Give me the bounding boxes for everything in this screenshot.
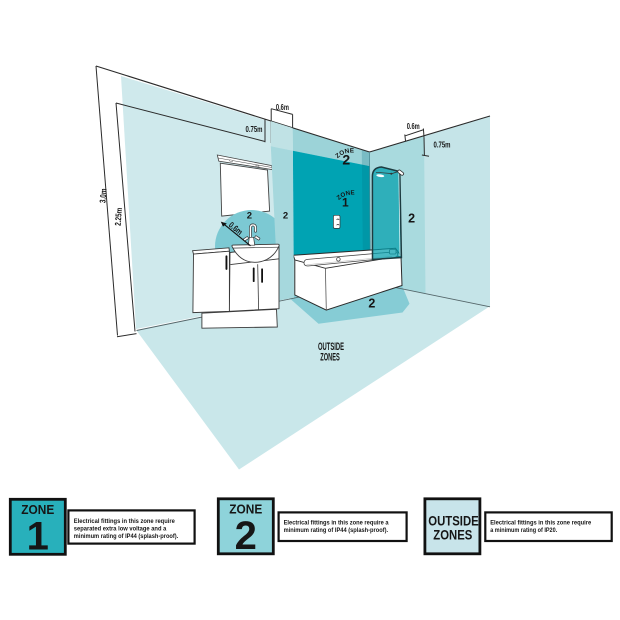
svg-text:2: 2	[368, 296, 375, 310]
svg-text:2.25m: 2.25m	[113, 207, 124, 226]
svg-text:ZONES: ZONES	[320, 352, 340, 364]
svg-text:2: 2	[283, 211, 288, 222]
svg-text:Electrical fittings in this zo: Electrical fittings in this zone require…	[284, 519, 389, 526]
svg-text:1: 1	[342, 196, 349, 210]
svg-text:3.0m: 3.0m	[97, 188, 108, 204]
svg-text:2: 2	[247, 211, 252, 222]
svg-text:1: 1	[27, 515, 49, 559]
svg-text:0.75m: 0.75m	[246, 124, 263, 134]
svg-text:0.6m: 0.6m	[407, 121, 420, 131]
svg-text:a minimum rating of IP20.: a minimum rating of IP20.	[490, 527, 557, 534]
svg-text:ZONES: ZONES	[433, 527, 472, 543]
svg-text:2: 2	[235, 514, 257, 558]
svg-text:0.6m: 0.6m	[276, 102, 289, 112]
svg-text:Electrical fittings in this zo: Electrical fittings in this zone require	[490, 519, 591, 526]
svg-text:Electrical fittings in this zo: Electrical fittings in this zone require	[74, 518, 175, 525]
svg-text:2: 2	[342, 151, 350, 167]
svg-text:minimum rating of IP44 (splash: minimum rating of IP44 (splash-proof).	[74, 533, 179, 540]
svg-text:separated extra low voltage an: separated extra low voltage and a	[74, 525, 167, 532]
svg-text:0.75m: 0.75m	[434, 140, 451, 150]
svg-text:minimum rating of IP44 (splash: minimum rating of IP44 (splash-proof).	[284, 527, 389, 534]
svg-text:2: 2	[408, 212, 415, 226]
